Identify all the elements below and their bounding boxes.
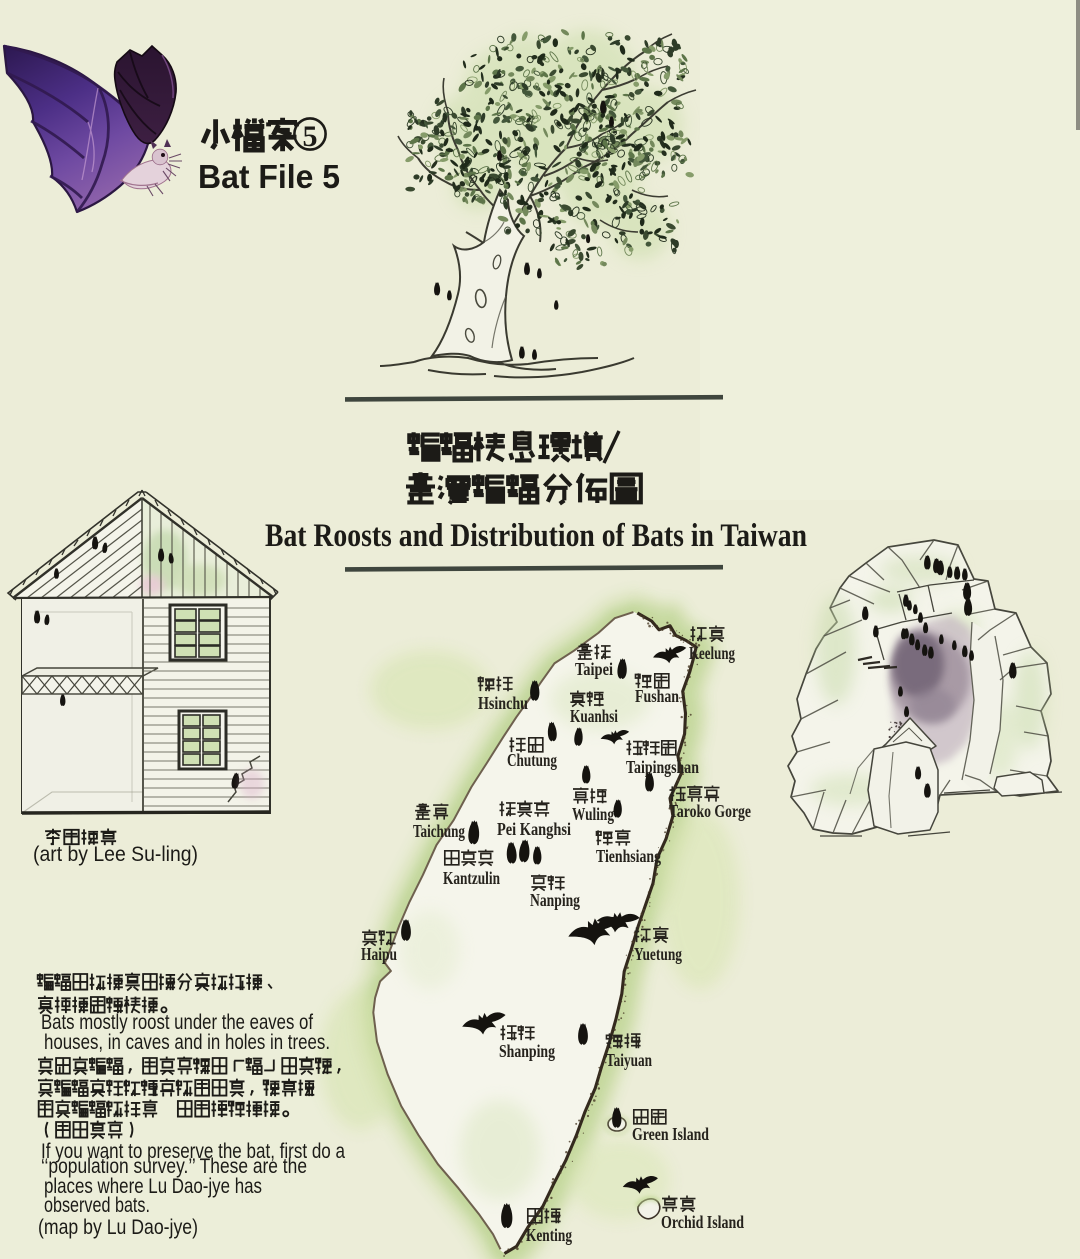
svg-text:Kenting: Kenting — [526, 1225, 572, 1245]
svg-text:(art by Lee Su-ling): (art by Lee Su-ling) — [33, 843, 198, 866]
svg-text:Pei Kanghsi: Pei Kanghsi — [497, 819, 571, 839]
svg-text:Kantzulin: Kantzulin — [443, 868, 500, 888]
svg-text:Keelung: Keelung — [689, 643, 735, 663]
svg-text:Green Island: Green Island — [632, 1124, 709, 1144]
svg-text:Taichung: Taichung — [413, 821, 465, 841]
svg-text:observed bats.: observed bats. — [44, 1194, 150, 1217]
svg-text:Bat Roosts and Distribution of: Bat Roosts and Distribution of Bats in T… — [265, 518, 807, 554]
svg-text:Bat File 5: Bat File 5 — [198, 158, 340, 195]
svg-text:Taroko Gorge: Taroko Gorge — [669, 801, 751, 821]
svg-text:Shanping: Shanping — [499, 1041, 555, 1061]
svg-text:Haipu: Haipu — [361, 944, 397, 964]
svg-text:Yuetung: Yuetung — [634, 944, 682, 964]
svg-text:Kuanhsi: Kuanhsi — [570, 706, 618, 726]
svg-text:(map by Lu Dao-jye): (map by Lu Dao-jye) — [38, 1216, 198, 1239]
svg-text:Tienhsiang: Tienhsiang — [596, 846, 661, 866]
svg-text:Chutung: Chutung — [507, 750, 557, 770]
svg-text:Nanping: Nanping — [530, 890, 580, 910]
svg-text:Fushan: Fushan — [635, 686, 679, 706]
svg-text:Wuling: Wuling — [572, 804, 614, 824]
svg-text:Orchid Island: Orchid Island — [661, 1212, 744, 1232]
svg-text:Taipei: Taipei — [575, 659, 613, 679]
svg-text:Hsinchu: Hsinchu — [478, 693, 528, 713]
svg-text:houses, in caves and in holes: houses, in caves and in holes in trees. — [44, 1031, 330, 1054]
svg-text:Taipingshan: Taipingshan — [626, 757, 699, 777]
svg-text:5: 5 — [303, 120, 318, 153]
svg-text:Taiyuan: Taiyuan — [606, 1050, 652, 1070]
